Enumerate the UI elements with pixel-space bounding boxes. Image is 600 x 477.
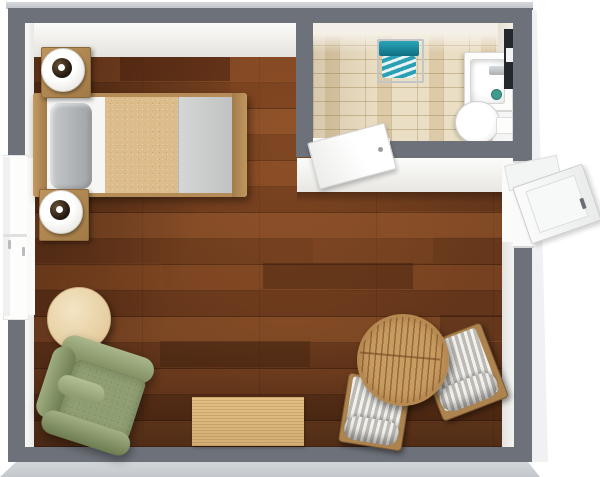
floor-plan-canvas <box>0 0 600 477</box>
right-wall-upper <box>513 8 533 161</box>
toilet-paper-shelf <box>496 117 513 134</box>
lamp-top-finial <box>58 64 65 71</box>
bed-pillow <box>50 103 92 189</box>
bottom-wall-outer-face <box>0 462 545 477</box>
mirror-reflection <box>506 48 513 62</box>
area-rug[interactable] <box>192 397 304 446</box>
towel-folded <box>379 41 419 56</box>
window-handle-icon <box>8 240 11 249</box>
toilet-bowl[interactable] <box>455 101 500 144</box>
window-handle-icon <box>22 247 25 256</box>
divider-wall <box>296 8 313 157</box>
bathroom-south-wall <box>390 141 513 158</box>
bottom-wall <box>8 447 533 462</box>
wall-shadow-on-floor <box>297 192 513 203</box>
bed-headboard <box>33 93 48 197</box>
top-wall <box>8 8 533 23</box>
bathroom-door-handle-icon <box>378 147 383 152</box>
bed-footboard <box>232 93 247 197</box>
towel-hanging <box>382 56 416 78</box>
bed-blanket-gray <box>178 97 233 193</box>
faucet <box>489 66 505 75</box>
right-wall-lower <box>514 244 533 462</box>
lamp-bottom-finial <box>56 206 63 213</box>
cup <box>491 89 502 100</box>
bed-blanket-tan <box>105 97 178 193</box>
window-mullion <box>3 234 27 237</box>
